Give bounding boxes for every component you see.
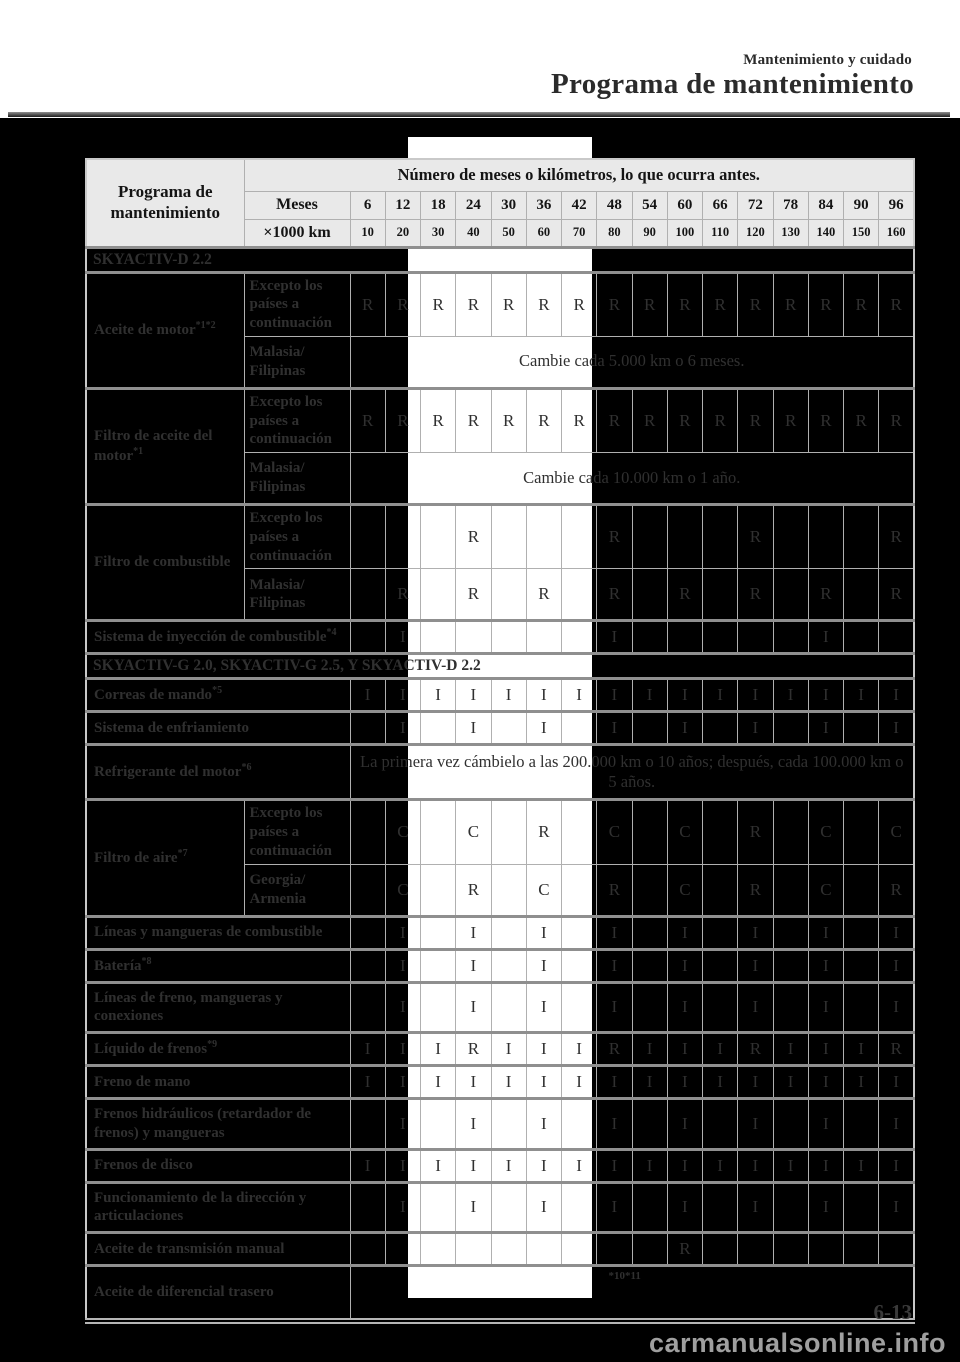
interval-cell: I [808, 916, 843, 949]
interval-cell [667, 621, 702, 654]
interval-cell: R [526, 388, 561, 452]
interval-cell: R [385, 272, 420, 336]
interval-cell: I [879, 712, 914, 745]
month-cell: 78 [773, 191, 808, 219]
region-label: Excepto los países a continuación [244, 272, 350, 336]
interval-cell: I [597, 982, 632, 1033]
footnote-marker: *4 [327, 627, 337, 638]
interval-cell: I [526, 982, 561, 1033]
interval-cell [491, 1233, 526, 1266]
region-label: Malasia/ Filipinas [244, 569, 350, 621]
row-label-text: Líneas y mangueras de combustible [94, 924, 322, 940]
interval-cell [773, 982, 808, 1033]
month-cell: 96 [879, 191, 914, 219]
interval-cell: I [350, 1066, 385, 1099]
interval-cell [491, 949, 526, 982]
interval-cell [562, 800, 597, 864]
interval-cell: R [350, 388, 385, 452]
interval-cell: I [456, 1182, 491, 1233]
km-cell: 130 [773, 219, 808, 247]
interval-cell [632, 505, 667, 569]
interval-cell: I [738, 1149, 773, 1182]
interval-cell: I [667, 1099, 702, 1150]
interval-cell: R [456, 569, 491, 621]
interval-cell: I [385, 1066, 420, 1099]
region-label: Malasia/ Filipinas [244, 336, 350, 388]
interval-cell [421, 1099, 456, 1150]
interval-cell: I [526, 916, 561, 949]
interval-cell: I [385, 1149, 420, 1182]
row-label: Líquido de frenos*9 [86, 1033, 350, 1066]
interval-cell: R [844, 272, 879, 336]
interval-cell: R [456, 1033, 491, 1066]
interval-cell: R [526, 272, 561, 336]
interval-cell [738, 621, 773, 654]
interval-cell: C [808, 864, 843, 916]
month-cell: 84 [808, 191, 843, 219]
interval-cell [703, 982, 738, 1033]
month-cell: 60 [667, 191, 702, 219]
interval-cell [773, 1099, 808, 1150]
interval-cell [562, 864, 597, 916]
km-cell: 20 [385, 219, 420, 247]
section-row: SKYACTIV-G 2.0, SKYACTIV-G 2.5, Y SKYACT… [86, 654, 914, 679]
interval-span-header: Número de meses o kilómetros, lo que ocu… [244, 159, 914, 191]
interval-cell: I [421, 1149, 456, 1182]
interval-cell [491, 982, 526, 1033]
header-divider-rule [8, 112, 950, 117]
interval-cell: I [738, 679, 773, 712]
interval-cell: C [667, 800, 702, 864]
interval-cell: I [738, 916, 773, 949]
interval-cell [773, 916, 808, 949]
interval-cell [703, 505, 738, 569]
interval-cell: R [808, 388, 843, 452]
interval-cell [526, 1233, 561, 1266]
interval-cell [562, 982, 597, 1033]
row-label-text: Freno de mano [94, 1074, 190, 1090]
interval-cell: I [562, 1066, 597, 1099]
interval-cell: I [879, 679, 914, 712]
interval-cell [526, 621, 561, 654]
table-body: SKYACTIV-D 2.2Aceite de motor*1*2Excepto… [86, 247, 914, 1321]
row-label: Líneas y mangueras de combustible [86, 916, 350, 949]
month-cell: 48 [597, 191, 632, 219]
interval-cell [703, 949, 738, 982]
table-header: Programa de mantenimiento Número de mese… [86, 159, 914, 247]
interval-cell: I [703, 1149, 738, 1182]
interval-cell: R [632, 388, 667, 452]
interval-cell [773, 569, 808, 621]
interval-cell [844, 1099, 879, 1150]
interval-cell [562, 1233, 597, 1266]
row-label: Funcionamiento de la dirección y articul… [86, 1182, 350, 1233]
interval-cell [773, 1182, 808, 1233]
interval-cell: R [562, 388, 597, 452]
interval-cell: I [738, 1182, 773, 1233]
month-cell: 30 [491, 191, 526, 219]
interval-cell: I [562, 1033, 597, 1066]
interval-cell: I [808, 982, 843, 1033]
interval-cell [632, 569, 667, 621]
interval-cell: I [808, 1149, 843, 1182]
interval-cell: I [738, 712, 773, 745]
interval-cell: R [879, 272, 914, 336]
interval-cell: I [879, 949, 914, 982]
interval-cell: R [597, 505, 632, 569]
row-label: Sistema de inyección de combustible*4 [86, 621, 350, 654]
interval-cell [491, 800, 526, 864]
interval-cell [844, 800, 879, 864]
interval-cell: I [808, 1099, 843, 1150]
km-cell: 10 [350, 219, 385, 247]
interval-cell [808, 1233, 843, 1266]
interval-cell [773, 864, 808, 916]
interval-cell: I [808, 949, 843, 982]
interval-cell: I [632, 1066, 667, 1099]
interval-cell: I [632, 1149, 667, 1182]
interval-cell [421, 569, 456, 621]
interval-cell [491, 621, 526, 654]
km-cell: 100 [667, 219, 702, 247]
interval-cell [562, 916, 597, 949]
interval-cell: R [421, 388, 456, 452]
interval-cell [421, 712, 456, 745]
interval-cell: I [667, 916, 702, 949]
interval-cell: I [597, 621, 632, 654]
interval-cell: I [879, 1149, 914, 1182]
row-label: Aceite de diferencial trasero [86, 1266, 350, 1321]
interval-cell [844, 1233, 879, 1266]
interval-cell: C [456, 800, 491, 864]
interval-cell [350, 1233, 385, 1266]
section-row-label: SKYACTIV-G 2.0, SKYACTIV-G 2.5, Y SKYACT… [86, 654, 914, 679]
interval-cell [773, 949, 808, 982]
interval-cell [773, 800, 808, 864]
row-label-text: Líquido de frenos [94, 1041, 207, 1057]
interval-cell: I [808, 1033, 843, 1066]
interval-cell: R [421, 272, 456, 336]
interval-cell: I [491, 1149, 526, 1182]
interval-cell [562, 505, 597, 569]
interval-cell: R [526, 569, 561, 621]
interval-cell [667, 505, 702, 569]
row-label: Aceite de motor*1*2 [86, 272, 244, 388]
interval-cell: R [491, 272, 526, 336]
interval-cell: I [491, 1066, 526, 1099]
interval-cell: R [879, 1033, 914, 1066]
page-title: Programa de mantenimiento [551, 68, 914, 101]
interval-cell: R [597, 864, 632, 916]
footnote-marker: *8 [141, 956, 151, 967]
interval-cell: R [738, 569, 773, 621]
interval-cell: I [350, 1033, 385, 1066]
interval-cell: I [350, 1149, 385, 1182]
interval-cell: I [456, 916, 491, 949]
interval-cell: R [350, 272, 385, 336]
interval-cell: I [526, 1099, 561, 1150]
interval-cell [562, 1099, 597, 1150]
interval-cell: I [526, 949, 561, 982]
interval-cell: I [491, 679, 526, 712]
row-label-text: Batería [94, 958, 141, 974]
interval-cell: I [844, 1149, 879, 1182]
footnote-marker: *1 [133, 446, 143, 457]
interval-cell [632, 949, 667, 982]
row-label-text: Correas de mando [94, 687, 212, 703]
interval-cell: R [738, 388, 773, 452]
month-cell: 66 [703, 191, 738, 219]
month-cell: 24 [456, 191, 491, 219]
km-cell: 90 [632, 219, 667, 247]
interval-cell: C [597, 800, 632, 864]
interval-cell: R [738, 864, 773, 916]
interval-cell [421, 800, 456, 864]
interval-cell: R [456, 388, 491, 452]
interval-cell: I [597, 1099, 632, 1150]
interval-cell: R [738, 505, 773, 569]
interval-cell [879, 1233, 914, 1266]
interval-cell [632, 982, 667, 1033]
row-label-text: Sistema de inyección de combustible [94, 629, 327, 645]
km-cell: 140 [808, 219, 843, 247]
interval-cell: I [667, 1033, 702, 1066]
section-row: SKYACTIV-D 2.2 [86, 247, 914, 272]
interval-cell [562, 621, 597, 654]
region-label: Georgia/ Armenia [244, 864, 350, 916]
interval-cell: I [738, 1066, 773, 1099]
interval-cell: R [597, 388, 632, 452]
table-row: Refrigerante del motor*6La primera vez c… [86, 745, 914, 800]
interval-cell [562, 949, 597, 982]
interval-cell [491, 864, 526, 916]
interval-cell: I [562, 679, 597, 712]
interval-cell: I [773, 1149, 808, 1182]
interval-cell: I [667, 1182, 702, 1233]
interval-cell: R [808, 272, 843, 336]
table-row: Líneas de freno, mangueras y conexionesI… [86, 982, 914, 1033]
interval-cell: I [456, 1149, 491, 1182]
interval-cell: I [667, 949, 702, 982]
interval-cell [844, 569, 879, 621]
row-label-text: Filtro de aire [94, 850, 178, 866]
interval-cell [844, 712, 879, 745]
region-label: Excepto los países a continuación [244, 388, 350, 452]
interval-cell [350, 621, 385, 654]
interval-cell [703, 712, 738, 745]
interval-cell: R [773, 388, 808, 452]
interval-cell: R [879, 569, 914, 621]
interval-cell: I [385, 712, 420, 745]
interval-cell [491, 1182, 526, 1233]
interval-cell: I [738, 982, 773, 1033]
table-row: Correas de mando*5IIIIIIIIIIIIIIII [86, 679, 914, 712]
interval-note: La primera vez cámbielo a las 200.000 km… [350, 745, 914, 800]
km-cell: 70 [562, 219, 597, 247]
interval-cell [562, 569, 597, 621]
interval-cell [421, 982, 456, 1033]
km-cell: 80 [597, 219, 632, 247]
interval-cell: I [844, 1066, 879, 1099]
interval-cell [703, 1099, 738, 1150]
interval-cell [632, 712, 667, 745]
interval-cell: I [597, 1149, 632, 1182]
interval-cell: I [667, 679, 702, 712]
interval-cell [773, 621, 808, 654]
interval-cell: I [667, 712, 702, 745]
table-row: Aceite de transmisión manualR [86, 1233, 914, 1266]
table-row: Filtro de aire*7Excepto los países a con… [86, 800, 914, 864]
interval-cell: C [667, 864, 702, 916]
interval-cell [421, 621, 456, 654]
interval-cell [456, 1233, 491, 1266]
month-cell: 90 [844, 191, 879, 219]
interval-cell: R [738, 800, 773, 864]
month-cell: 54 [632, 191, 667, 219]
interval-cell: I [385, 1099, 420, 1150]
row-label: Líneas de freno, mangueras y conexiones [86, 982, 350, 1033]
interval-cell: I [385, 949, 420, 982]
footnote-marker: *7 [178, 848, 188, 859]
interval-cell [703, 569, 738, 621]
interval-cell: I [632, 679, 667, 712]
interval-cell: I [879, 1066, 914, 1099]
table-row: Sistema de enfriamientoIIIIIIII [86, 712, 914, 745]
interval-cell: I [597, 916, 632, 949]
km-label: ×1000 km [244, 219, 350, 247]
interval-cell: I [597, 1182, 632, 1233]
interval-cell [844, 916, 879, 949]
interval-cell [844, 505, 879, 569]
interval-cell: R [385, 569, 420, 621]
interval-cell [632, 1099, 667, 1150]
interval-cell [350, 505, 385, 569]
interval-cell [703, 1182, 738, 1233]
interval-cell: I [597, 679, 632, 712]
km-cell: 50 [491, 219, 526, 247]
row-label-text: Líneas de freno, mangueras y conexiones [94, 990, 282, 1025]
interval-cell: R [385, 388, 420, 452]
interval-cell: I [385, 1033, 420, 1066]
footnote-marker: *1*2 [196, 320, 216, 331]
interval-cell [632, 864, 667, 916]
month-cell: 72 [738, 191, 773, 219]
interval-cell: I [773, 1066, 808, 1099]
interval-cell: R [667, 569, 702, 621]
row-label: Aceite de transmisión manual [86, 1233, 350, 1266]
interval-cell [385, 505, 420, 569]
interval-cell [350, 1099, 385, 1150]
interval-cell [844, 982, 879, 1033]
footnote-marker: *9 [207, 1039, 217, 1050]
row-label: Correas de mando*5 [86, 679, 350, 712]
interval-cell [632, 800, 667, 864]
interval-cell: I [703, 1066, 738, 1099]
interval-cell: I [421, 679, 456, 712]
row-label: Frenos hidráulicos (retardador de frenos… [86, 1099, 350, 1150]
interval-cell [562, 712, 597, 745]
interval-cell [350, 800, 385, 864]
interval-cell [703, 1233, 738, 1266]
region-label: Excepto los países a continuación [244, 505, 350, 569]
interval-cell: R [667, 1233, 702, 1266]
interval-cell: I [526, 1066, 561, 1099]
interval-cell [844, 621, 879, 654]
interval-cell: I [491, 1033, 526, 1066]
interval-note: *10*11 [350, 1266, 914, 1321]
interval-cell: R [632, 272, 667, 336]
interval-cell: I [526, 1149, 561, 1182]
interval-cell: C [385, 864, 420, 916]
table-row: Frenos de discoIIIIIIIIIIIIIIII [86, 1149, 914, 1182]
interval-cell: I [667, 1149, 702, 1182]
interval-cell: I [385, 1182, 420, 1233]
interval-cell [491, 1099, 526, 1150]
interval-cell: R [667, 388, 702, 452]
interval-cell [491, 916, 526, 949]
interval-cell [421, 949, 456, 982]
interval-cell [491, 569, 526, 621]
interval-cell: R [703, 272, 738, 336]
interval-cell: R [597, 569, 632, 621]
interval-cell: I [879, 1182, 914, 1233]
interval-cell: I [844, 1033, 879, 1066]
interval-cell: C [879, 800, 914, 864]
interval-cell: R [456, 272, 491, 336]
interval-cell: R [738, 1033, 773, 1066]
region-label: Malasia/ Filipinas [244, 453, 350, 505]
interval-cell: I [808, 712, 843, 745]
interval-cell: R [703, 388, 738, 452]
interval-cell [421, 916, 456, 949]
interval-cell [421, 1233, 456, 1266]
km-cell: 110 [703, 219, 738, 247]
interval-cell: I [385, 621, 420, 654]
interval-cell [350, 916, 385, 949]
interval-cell: I [738, 949, 773, 982]
interval-cell: R [879, 388, 914, 452]
interval-cell: I [597, 949, 632, 982]
km-cell: 40 [456, 219, 491, 247]
interval-cell: I [844, 679, 879, 712]
interval-cell [562, 1182, 597, 1233]
interval-cell: I [456, 1066, 491, 1099]
interval-cell [703, 621, 738, 654]
interval-cell: I [773, 1033, 808, 1066]
interval-cell [703, 800, 738, 864]
interval-cell: I [632, 1033, 667, 1066]
km-cell: 60 [526, 219, 561, 247]
interval-cell: C [808, 800, 843, 864]
interval-cell [632, 916, 667, 949]
interval-cell: I [703, 679, 738, 712]
table-row: Líneas y mangueras de combustibleIIIIIII… [86, 916, 914, 949]
row-label: Filtro de aire*7 [86, 800, 244, 916]
interval-cell [526, 505, 561, 569]
interval-cell [879, 621, 914, 654]
km-cell: 160 [879, 219, 914, 247]
interval-cell [632, 1182, 667, 1233]
month-cell: 6 [350, 191, 385, 219]
row-label-text: Aceite de transmisión manual [94, 1241, 284, 1257]
interval-cell: R [597, 1033, 632, 1066]
month-cell: 12 [385, 191, 420, 219]
interval-cell: I [385, 982, 420, 1033]
interval-cell: C [385, 800, 420, 864]
interval-cell [385, 1233, 420, 1266]
interval-cell: R [773, 272, 808, 336]
row-label: Filtro de aceite del motor*1 [86, 388, 244, 504]
